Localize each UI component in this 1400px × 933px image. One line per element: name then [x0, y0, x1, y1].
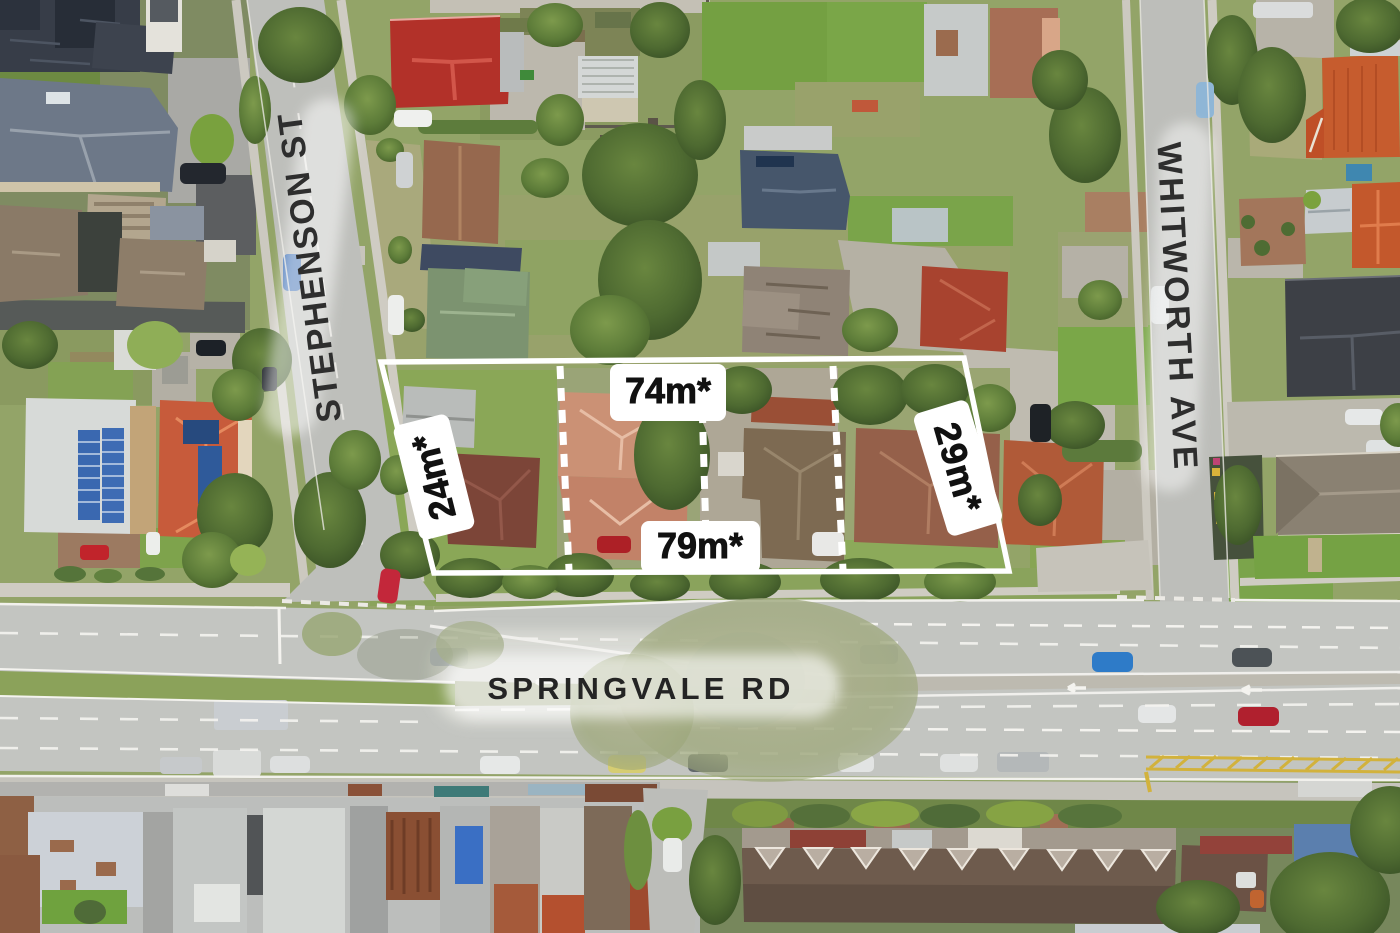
svg-text:74m*: 74m*: [625, 370, 711, 411]
svg-text:SPRINGVALE RD: SPRINGVALE RD: [487, 671, 794, 706]
svg-text:79m*: 79m*: [657, 525, 743, 566]
